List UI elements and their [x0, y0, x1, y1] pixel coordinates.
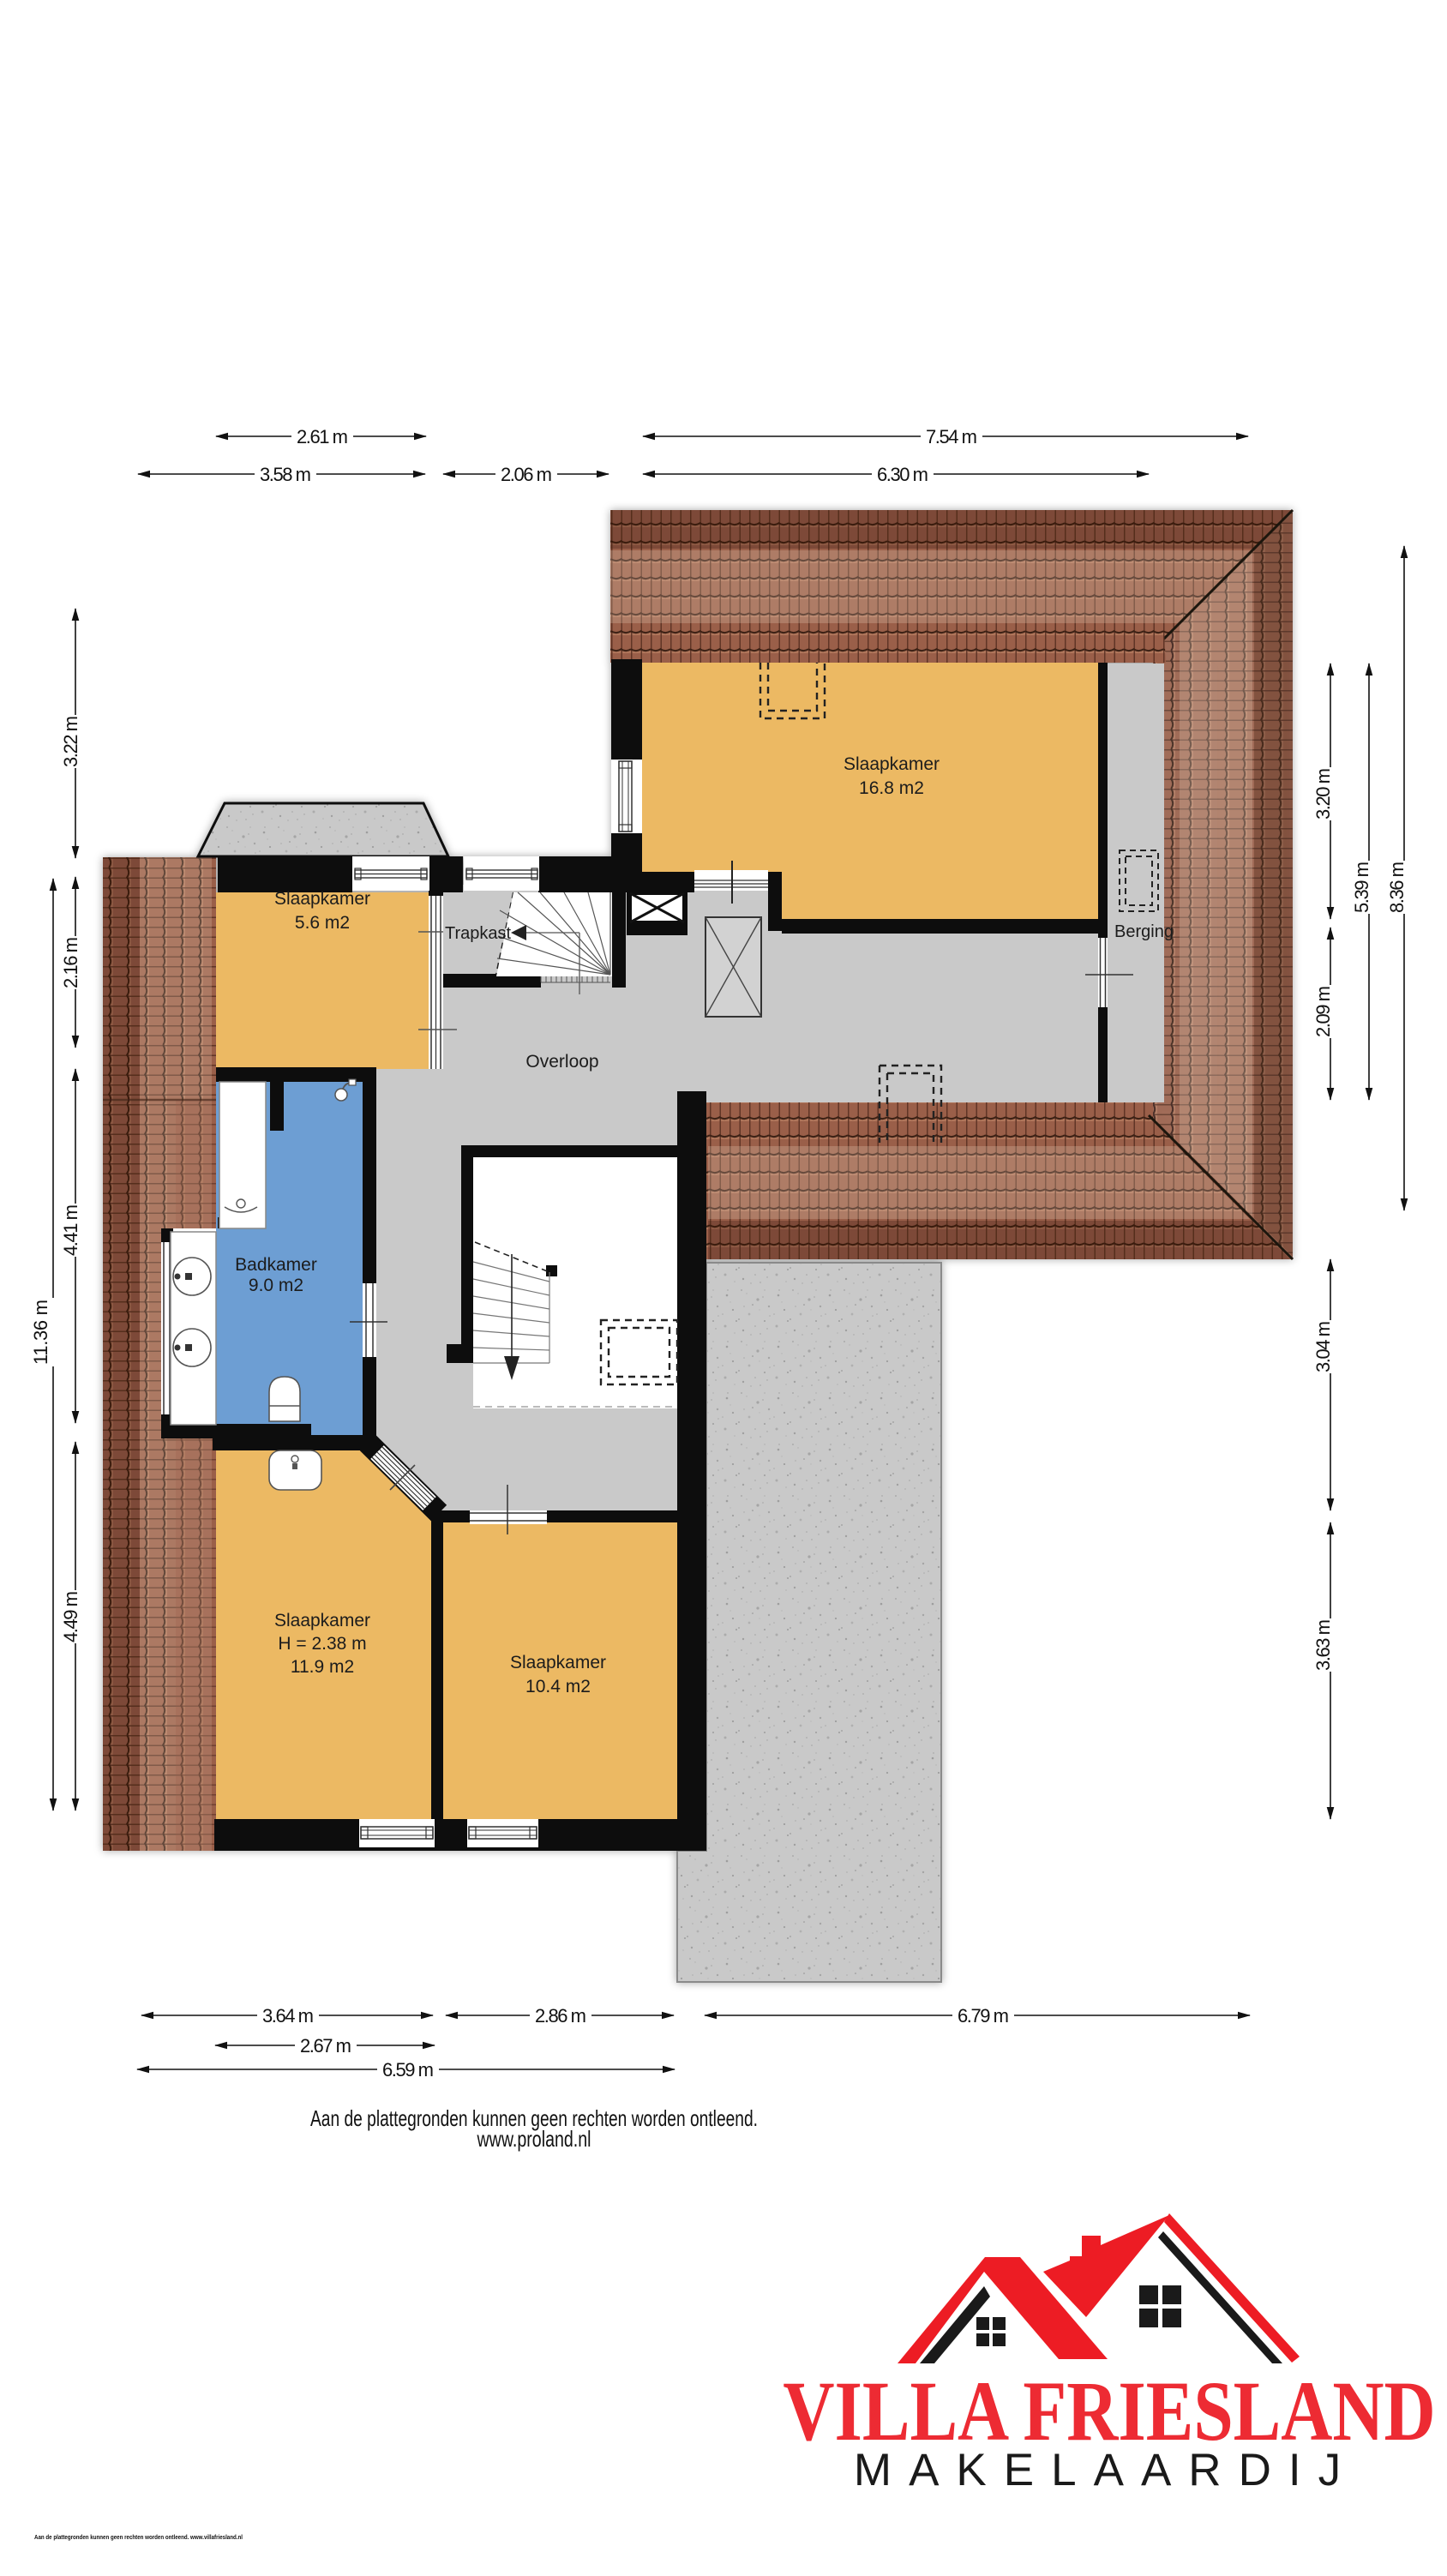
svg-text:MAKELAARDIJ: MAKELAARDIJ: [854, 2445, 1358, 2495]
svg-text:Slaapkamer: Slaapkamer: [274, 1611, 370, 1630]
svg-text:Slaapkamer: Slaapkamer: [844, 754, 940, 774]
svg-text:4.49 m: 4.49 m: [60, 1591, 81, 1642]
svg-text:3.64 m: 3.64 m: [262, 2005, 314, 2027]
svg-text:6.79 m: 6.79 m: [958, 2005, 1009, 2027]
svg-text:Aan de plattegronden kunnen ge: Aan de plattegronden kunnen geen rechten…: [34, 2535, 243, 2541]
svg-text:5.6 m2: 5.6 m2: [295, 913, 350, 933]
svg-text:4.41 m: 4.41 m: [60, 1204, 81, 1256]
svg-text:2.86 m: 2.86 m: [535, 2005, 586, 2027]
svg-text:2.67 m: 2.67 m: [300, 2035, 351, 2057]
svg-text:8.36 m: 8.36 m: [1386, 862, 1408, 913]
svg-text:16.8 m2: 16.8 m2: [859, 778, 924, 798]
svg-text:H = 2.38 m: H = 2.38 m: [278, 1634, 366, 1654]
svg-text:2.06 m: 2.06 m: [501, 464, 552, 485]
svg-text:6.30 m: 6.30 m: [877, 464, 928, 485]
svg-text:6.59 m: 6.59 m: [382, 2059, 434, 2081]
svg-text:Slaapkamer: Slaapkamer: [510, 1653, 606, 1672]
svg-text:3.63 m: 3.63 m: [1312, 1619, 1334, 1671]
svg-text:2.16 m: 2.16 m: [60, 937, 81, 988]
svg-text:11.9 m2: 11.9 m2: [291, 1657, 354, 1677]
svg-text:5.39 m: 5.39 m: [1351, 862, 1372, 913]
svg-text:Badkamer: Badkamer: [235, 1255, 317, 1275]
svg-text:9.0 m2: 9.0 m2: [249, 1276, 303, 1295]
svg-text:3.04 m: 3.04 m: [1312, 1321, 1334, 1372]
svg-text:3.58 m: 3.58 m: [260, 464, 311, 485]
svg-text:Berging: Berging: [1114, 922, 1174, 941]
svg-text:www.proland.nl: www.proland.nl: [477, 2126, 591, 2152]
svg-text:Trapkast: Trapkast: [445, 924, 512, 943]
svg-text:2.61 m: 2.61 m: [297, 426, 348, 447]
svg-text:3.20 m: 3.20 m: [1312, 768, 1334, 820]
svg-text:11.36 m: 11.36 m: [30, 1300, 51, 1365]
svg-text:2.09 m: 2.09 m: [1312, 986, 1334, 1037]
svg-text:Slaapkamer: Slaapkamer: [274, 889, 370, 909]
svg-text:3.22 m: 3.22 m: [60, 716, 81, 767]
svg-text:10.4 m2: 10.4 m2: [525, 1677, 591, 1696]
svg-text:Overloop: Overloop: [525, 1052, 598, 1072]
svg-text:7.54 m: 7.54 m: [926, 426, 977, 447]
